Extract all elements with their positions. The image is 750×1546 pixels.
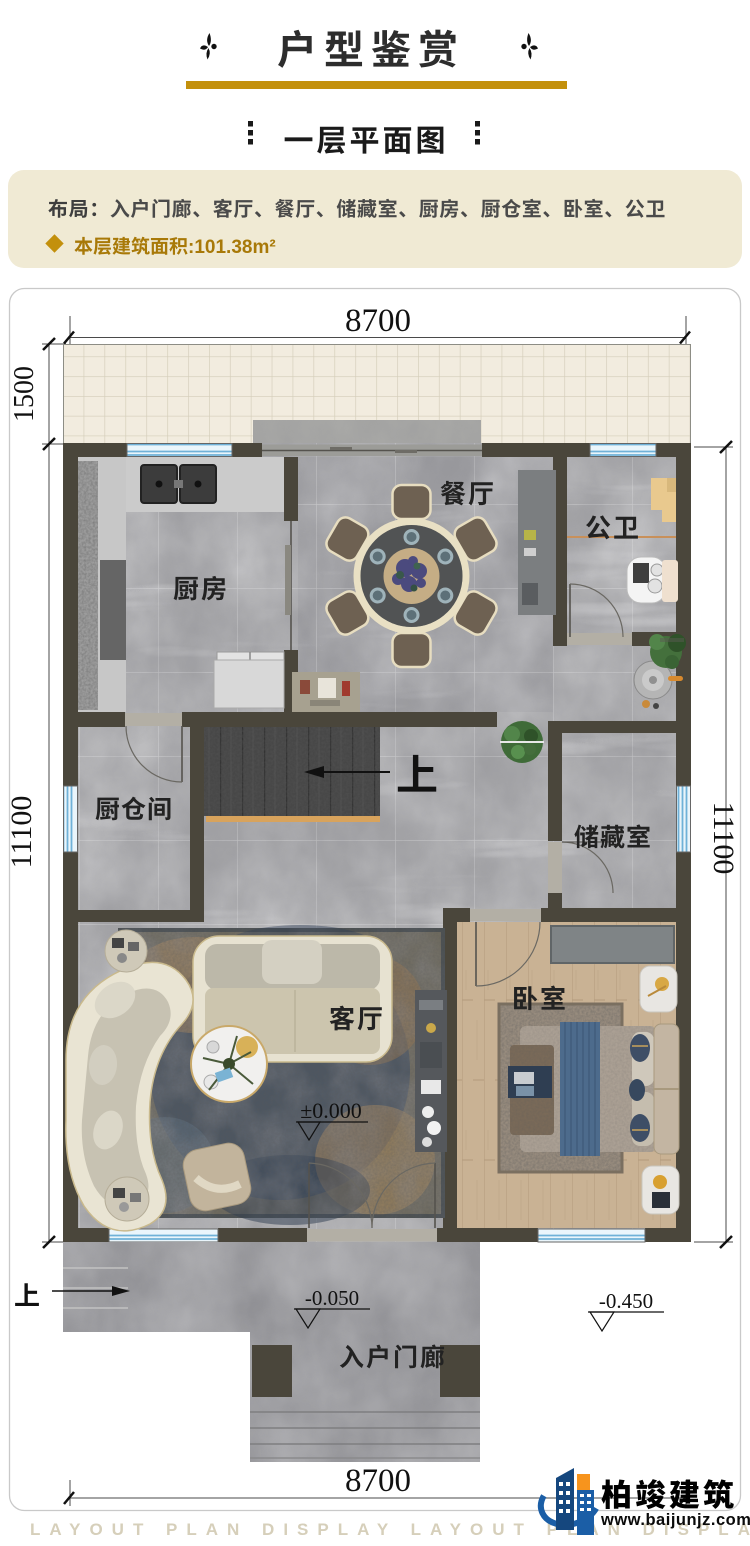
svg-text:厨仓间: 厨仓间 bbox=[95, 790, 173, 826]
svg-text:客厅: 客厅 bbox=[329, 999, 385, 1036]
svg-text:上: 上 bbox=[14, 1276, 40, 1313]
svg-text:餐厅: 餐厅 bbox=[440, 474, 496, 511]
svg-text:11100: 11100 bbox=[5, 796, 38, 869]
svg-text:11100: 11100 bbox=[707, 802, 740, 875]
svg-text:8700: 8700 bbox=[345, 1463, 411, 1499]
svg-text:上: 上 bbox=[396, 742, 438, 803]
svg-text:±0.000: ±0.000 bbox=[300, 1098, 362, 1123]
svg-text:入户门廊: 入户门廊 bbox=[339, 1338, 447, 1374]
svg-text:柏竣建筑: 柏竣建筑 bbox=[601, 1470, 737, 1515]
svg-text:www.baijunjz.com: www.baijunjz.com bbox=[600, 1511, 750, 1529]
svg-text:厨房: 厨房 bbox=[173, 569, 229, 606]
svg-text:公卫: 公卫 bbox=[585, 508, 641, 545]
svg-text:卧室: 卧室 bbox=[512, 979, 568, 1016]
svg-text:储藏室: 储藏室 bbox=[574, 818, 652, 854]
svg-text:-0.050: -0.050 bbox=[305, 1286, 359, 1310]
svg-text:-0.450: -0.450 bbox=[599, 1289, 653, 1313]
svg-text:1500: 1500 bbox=[9, 366, 40, 422]
svg-text:8700: 8700 bbox=[345, 303, 411, 339]
